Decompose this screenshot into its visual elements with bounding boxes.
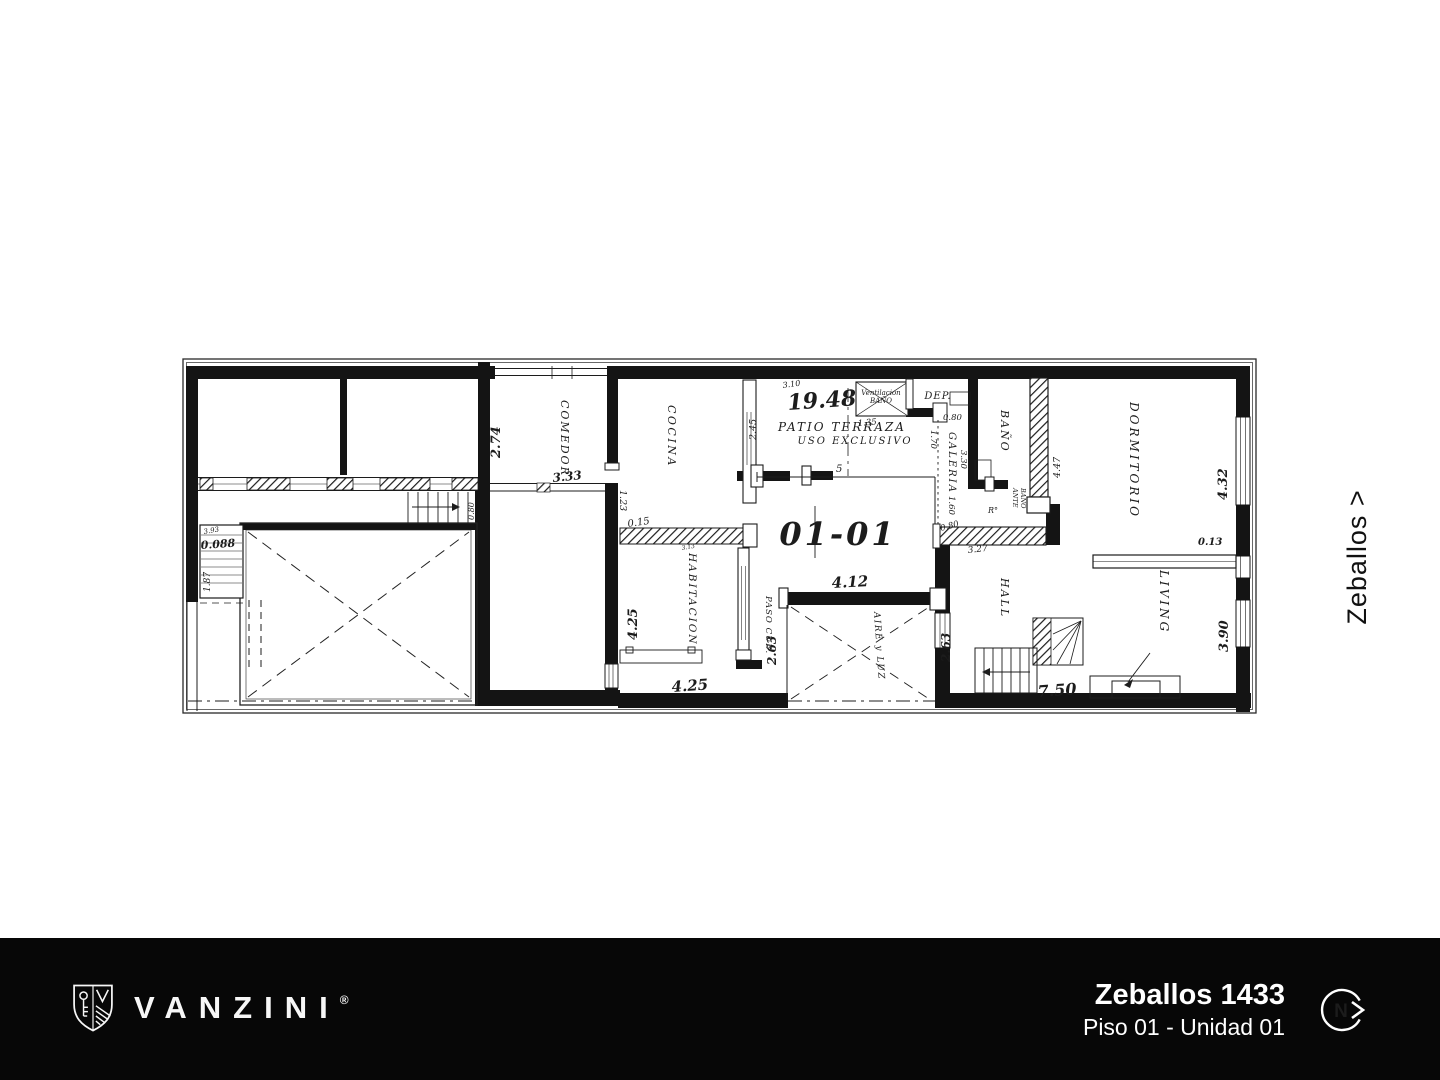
- dim-1-60: 1.60: [946, 496, 956, 516]
- unit-line: Piso 01 - Unidad 01: [1083, 1013, 1285, 1042]
- middle-room-edges: [490, 463, 619, 688]
- dim-1-87: 1.87: [203, 572, 213, 592]
- dormitorio-partition: [1093, 555, 1236, 568]
- top-wall-window: [495, 366, 607, 379]
- dim-2-74: 2.74: [489, 426, 504, 459]
- room-label-habitacion: HABITACION: [686, 552, 698, 646]
- brand-lockup: VANZINI®: [72, 984, 349, 1032]
- dim-7-50: 7.50: [1037, 679, 1077, 701]
- room-label-vent-1: Ventilacion: [861, 389, 901, 397]
- corridor-stairs: [408, 492, 468, 523]
- address-block: Zeballos 1433 Piso 01 - Unidad 01: [1083, 978, 1285, 1042]
- plan-sheet: 01-01 COMEDOR COCINA PATIO TERRAZA USO E…: [0, 0, 1440, 1080]
- dim-1-35: 1.35: [857, 417, 877, 429]
- unit-number: 01-01: [779, 515, 896, 553]
- brand-name: VANZINI®: [134, 985, 349, 1031]
- dim-4-47: 4.47: [1052, 456, 1063, 479]
- dim-1-70: 1.70: [928, 430, 938, 450]
- room-label-galeria: GALERIA: [946, 432, 957, 494]
- dim-3-30: 3.30: [958, 450, 968, 470]
- dim-0-80-stair: 0.80: [467, 502, 476, 520]
- dim-2-63-right: 2.63: [939, 633, 953, 663]
- dim-total: 19.48: [787, 385, 858, 416]
- void-block: [240, 523, 477, 705]
- dim-3-27: 3.27: [967, 544, 988, 556]
- vanzini-shield-icon: [72, 984, 114, 1032]
- room-label-vent-2: BAÑO: [869, 396, 892, 405]
- room-label-dep: DEP.: [923, 391, 951, 402]
- dim-1-23: 1.23: [617, 490, 628, 511]
- north-arrow-icon: N: [1317, 985, 1367, 1035]
- living-heater: [1090, 653, 1180, 698]
- room-label-comedor: COMEDOR: [558, 400, 571, 477]
- address-line: Zeballos 1433: [1083, 978, 1285, 1013]
- step-block: [187, 525, 261, 711]
- dim-4-25-h: 4.25: [671, 675, 709, 696]
- footer-bar: VANZINI® Zeballos 1433 Piso 01 - Unidad …: [0, 938, 1440, 1080]
- room-label-cocina: COCINA: [665, 405, 678, 468]
- room-label-ante-1: ANTE: [1011, 487, 1019, 508]
- dim-3-90: 3.90: [1217, 620, 1232, 652]
- room-label-ante-2: BAÑO: [1019, 487, 1028, 509]
- dim-2-45: 2.45: [748, 419, 759, 441]
- room-label-bano: BAÑO: [998, 409, 1012, 453]
- room-label-dormitorio: DORMITORIO: [1127, 401, 1141, 519]
- dim-4-12: 4.12: [831, 572, 868, 592]
- sill-band: [198, 478, 478, 491]
- dim-0-088: 0.088: [200, 537, 236, 552]
- floor-plan: 01-01 COMEDOR COCINA PATIO TERRAZA USO E…: [0, 0, 1440, 938]
- room-label-living: LIVING: [1157, 569, 1171, 634]
- room-label-patio-2: USO EXCLUSIVO: [797, 436, 912, 447]
- room-label-patio-1: PATIO TERRAZA: [777, 420, 906, 434]
- street-label: Zeballos >: [1342, 447, 1386, 667]
- room-label-hall: HALL: [998, 577, 1011, 618]
- habitacion-fixtures: [620, 548, 751, 663]
- registered-mark: ®: [340, 993, 349, 1007]
- dim-5: 5: [836, 464, 842, 475]
- north-letter: N: [1334, 1001, 1348, 1022]
- dim-3-13: 3.13: [681, 543, 696, 552]
- label-ro: R°: [987, 506, 998, 515]
- dim-0-80-dep: 0.80: [943, 413, 963, 423]
- room-label-aire-y-luz: AIRE y LUZ: [871, 611, 886, 681]
- dim-3-33: 3.33: [552, 468, 583, 485]
- dim-2-63-left: 2.63: [765, 636, 779, 666]
- dim-0-13: 0.13: [1198, 537, 1222, 548]
- dim-4-25-v: 4.25: [626, 608, 641, 640]
- dim-4-32: 4.32: [1216, 468, 1231, 500]
